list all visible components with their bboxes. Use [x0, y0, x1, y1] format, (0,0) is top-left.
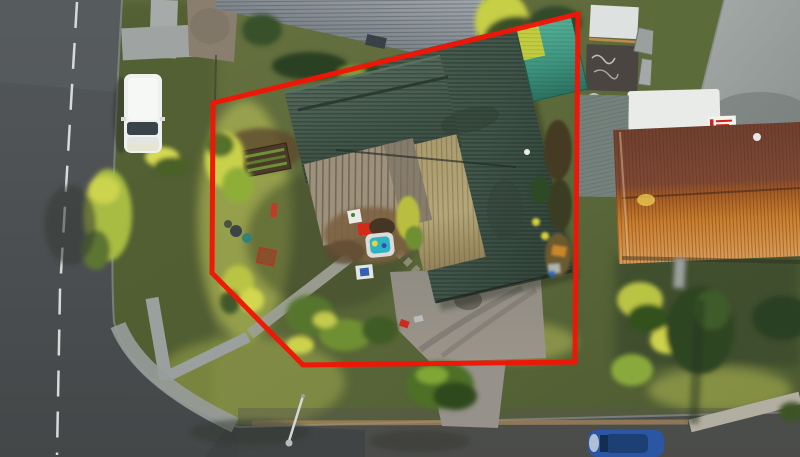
asphalt-patch-north — [0, 0, 122, 92]
car-windshield — [600, 435, 608, 452]
foliage-shade — [154, 157, 190, 177]
shrub-nw — [242, 14, 282, 46]
white-roof-vent — [524, 149, 530, 155]
blue-car — [588, 430, 664, 457]
van-mirror — [160, 117, 165, 121]
van-sunlit-front — [128, 144, 158, 151]
neighbour-house-east — [613, 121, 800, 264]
car-glint — [589, 434, 599, 452]
aerial-photo-canvas — [0, 0, 800, 457]
bin-small — [224, 220, 232, 228]
yellow-flowers — [541, 232, 549, 240]
walkway-east — [673, 258, 686, 289]
bin-dark — [230, 225, 242, 237]
van-mirror — [121, 117, 126, 121]
tree-shadow-on-road — [44, 185, 96, 265]
graffiti-shed — [585, 44, 639, 92]
gravel-mottle — [190, 8, 230, 44]
flower-bush-dark — [405, 226, 423, 250]
sandpit-cover — [360, 267, 370, 276]
yellow-flowers — [532, 218, 540, 226]
roof-stain — [487, 180, 523, 240]
white-shed-roof — [589, 5, 639, 39]
garden-clutter — [544, 120, 572, 180]
tree-south-shade — [433, 382, 477, 410]
bush-dark — [530, 176, 550, 204]
garden-clutter — [548, 179, 572, 231]
sandpit — [257, 247, 277, 265]
car-roof — [606, 434, 648, 453]
white-cooler — [347, 209, 362, 224]
tree-shadow-on-road — [370, 430, 470, 452]
roof-sun-glint — [637, 194, 655, 206]
fence-line-nw — [215, 55, 216, 102]
tree-south-light — [416, 366, 448, 384]
yellow-tree-west-core — [222, 167, 254, 203]
white-van — [113, 74, 165, 153]
van-roof — [128, 78, 158, 120]
bush-south-dark — [362, 316, 398, 344]
blue-item — [549, 271, 556, 278]
verge-tree-bright — [88, 176, 120, 204]
aerial-photo — [0, 0, 800, 457]
cooler-dot — [351, 213, 355, 217]
sign-red-text — [716, 121, 732, 122]
hedge-blob — [272, 52, 348, 80]
roof-vent-white — [753, 133, 761, 141]
bush-shadow — [628, 304, 668, 332]
van-windshield — [127, 122, 158, 135]
sunlit-bush — [611, 354, 653, 386]
patio-dirt-dark — [325, 240, 365, 264]
streetlight-base — [301, 394, 305, 398]
bin-teal — [242, 233, 252, 243]
tree-dark-top — [206, 133, 234, 157]
streetlight-lamp — [286, 440, 293, 447]
sandpit-covered — [355, 264, 373, 280]
paddling-pool — [365, 232, 395, 259]
red-play-toy — [270, 203, 277, 217]
bush-sun-top — [313, 312, 337, 328]
